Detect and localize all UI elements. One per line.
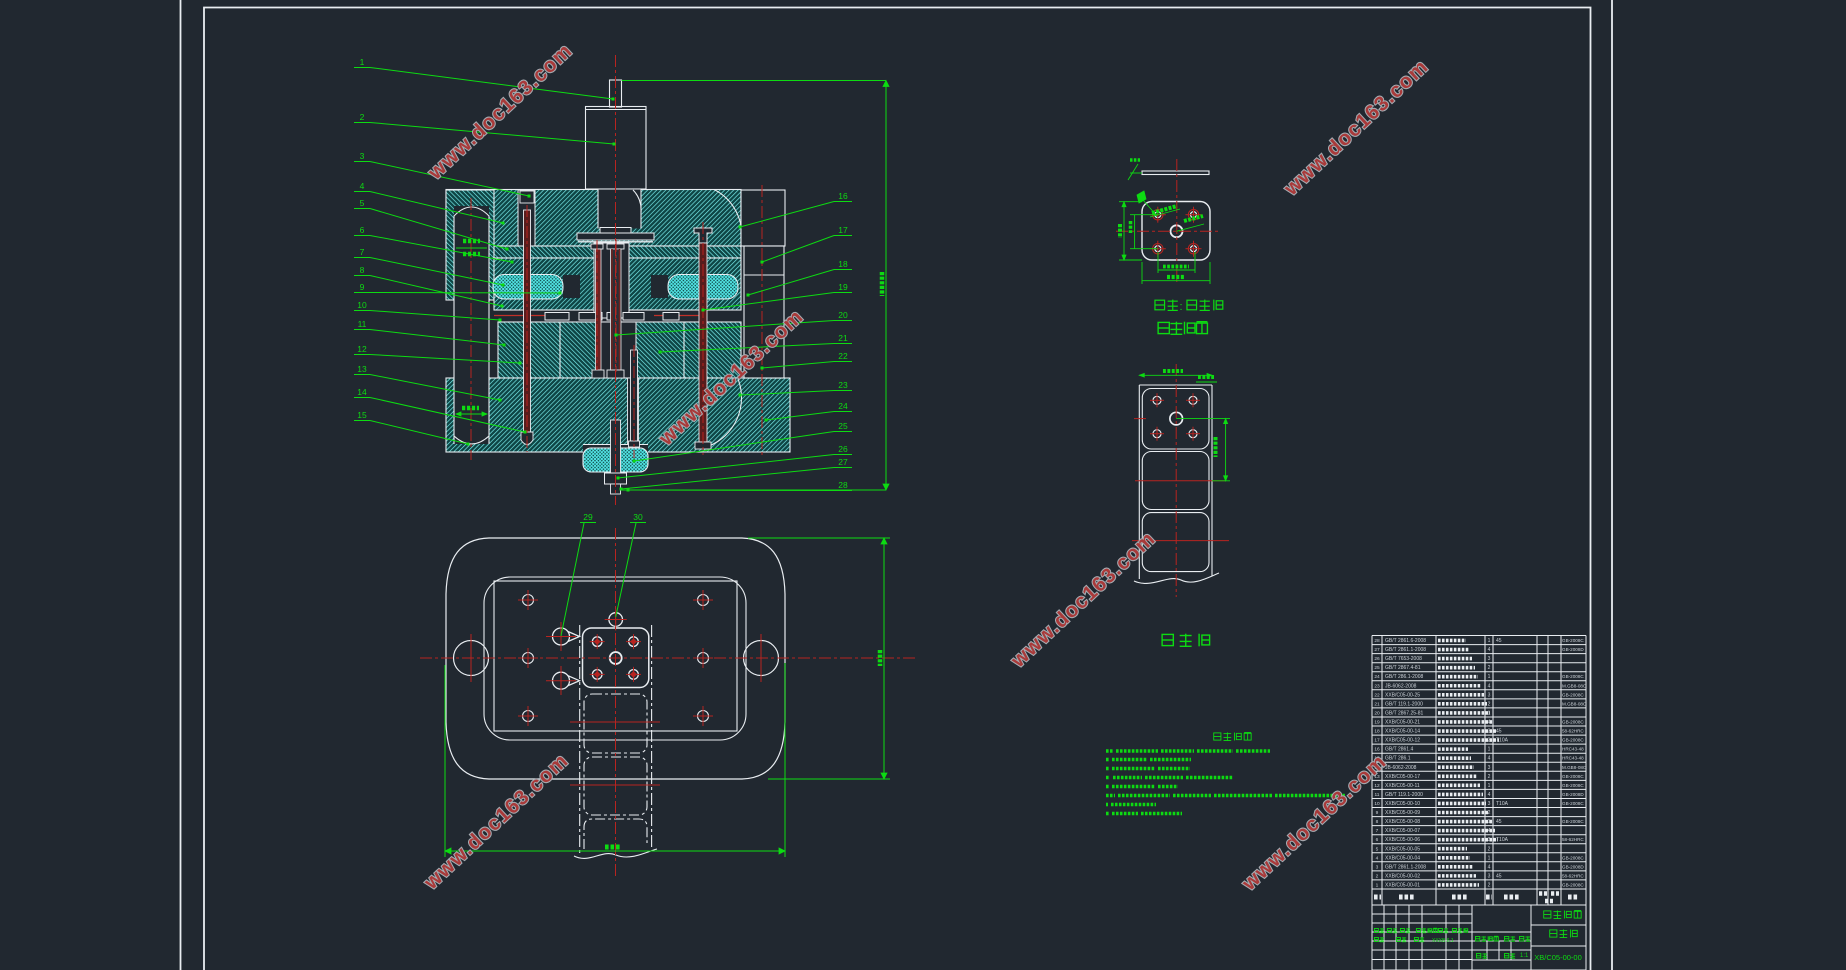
svg-text:58-62HRC: 58-62HRC [1562, 837, 1584, 842]
svg-text:HRC43-48: HRC43-48 [1562, 747, 1584, 752]
svg-text:M.GB8-08C: M.GB8-08C [1562, 765, 1587, 770]
svg-text:21: 21 [1374, 701, 1380, 707]
svg-text:8: 8 [360, 265, 365, 275]
svg-text:12: 12 [357, 344, 367, 354]
svg-text:3: 3 [1488, 692, 1491, 698]
svg-text:XXB/C05-00-25: XXB/C05-00-25 [1385, 692, 1420, 698]
svg-text:18: 18 [1374, 729, 1380, 735]
svg-text:3: 3 [1488, 656, 1491, 662]
svg-text:15: 15 [357, 410, 367, 420]
svg-text:2: 2 [1488, 846, 1491, 852]
svg-text:GB/T 2867.25-81: GB/T 2867.25-81 [1385, 710, 1423, 716]
svg-text:25: 25 [838, 421, 848, 431]
svg-text:17: 17 [1374, 738, 1380, 744]
svg-text:GB/T 2867.4-81: GB/T 2867.4-81 [1385, 665, 1421, 671]
svg-text:GB/T 119.1-2000: GB/T 119.1-2000 [1385, 792, 1423, 798]
svg-text:HRC43-48: HRC43-48 [1562, 756, 1584, 761]
svg-text:2: 2 [1488, 774, 1491, 780]
svg-text:2: 2 [1488, 883, 1491, 889]
svg-text:21: 21 [838, 333, 848, 343]
svg-text:2: 2 [1376, 873, 1379, 879]
svg-text:JB-6062-2008: JB-6062-2008 [1385, 683, 1417, 689]
svg-text:XXB/C05-00-06: XXB/C05-00-06 [1385, 837, 1420, 843]
svg-text:XXB/C05-00-12: XXB/C05-00-12 [1385, 738, 1420, 744]
svg-text:4: 4 [1488, 792, 1491, 798]
svg-text:4: 4 [1488, 756, 1491, 762]
svg-text::: : [1179, 301, 1182, 313]
svg-text:GB/T 119.1-2000: GB/T 119.1-2000 [1385, 701, 1423, 707]
svg-text:XXB/C05-00-02: XXB/C05-00-02 [1385, 873, 1420, 879]
svg-text:58-62HRC: 58-62HRC [1562, 729, 1584, 734]
svg-text:23: 23 [838, 380, 848, 390]
svg-text:3: 3 [360, 151, 365, 161]
svg-text:25: 25 [1374, 665, 1380, 671]
svg-text:19: 19 [1374, 720, 1380, 726]
svg-text:GB/T 2861.6-2008: GB/T 2861.6-2008 [1385, 638, 1426, 644]
svg-text:5: 5 [360, 198, 365, 208]
svg-text:XXB/C05-00-21: XXB/C05-00-21 [1385, 720, 1420, 726]
svg-text:27: 27 [838, 457, 848, 467]
svg-text:28: 28 [838, 480, 848, 490]
svg-text:58-62HRC: 58-62HRC [1562, 873, 1584, 878]
svg-text:4: 4 [1488, 647, 1491, 653]
svg-text:24: 24 [1374, 674, 1380, 680]
svg-text:GB/T 2861.1-2008: GB/T 2861.1-2008 [1385, 864, 1426, 870]
svg-text:2: 2 [360, 112, 365, 122]
svg-text:1: 1 [1488, 674, 1491, 680]
svg-text:XXB/C05-00-11: XXB/C05-00-11 [1385, 783, 1420, 789]
svg-text:GB/T 286.1: GB/T 286.1 [1385, 756, 1411, 762]
svg-text:1: 1 [1488, 783, 1491, 789]
svg-text:XXB/C05-00-05: XXB/C05-00-05 [1385, 846, 1420, 852]
svg-text:GB-2008C: GB-2008C [1562, 738, 1584, 743]
svg-text:4: 4 [360, 181, 365, 191]
svg-text:45: 45 [1496, 638, 1502, 644]
svg-text:4: 4 [1376, 855, 1379, 861]
svg-text:1: 1 [1488, 855, 1491, 861]
svg-text:GB-2008C: GB-2008C [1562, 801, 1584, 806]
svg-text:5: 5 [1376, 846, 1379, 852]
svg-text:2: 2 [1488, 701, 1491, 707]
svg-text:22: 22 [1374, 692, 1380, 698]
svg-text:GB/T 2861.4: GB/T 2861.4 [1385, 747, 1413, 753]
svg-text:6: 6 [360, 225, 365, 235]
svg-text:M.GB8-08C: M.GB8-08C [1562, 683, 1587, 688]
svg-text:24: 24 [838, 401, 848, 411]
svg-text:30: 30 [633, 512, 643, 522]
svg-text:2: 2 [1488, 665, 1491, 671]
svg-text:XXB/C05-00-10: XXB/C05-00-10 [1385, 801, 1420, 807]
svg-text:10: 10 [357, 300, 367, 310]
svg-text:GB-2008C: GB-2008C [1562, 674, 1584, 679]
svg-text:3: 3 [1376, 864, 1379, 870]
svg-text:1: 1 [1488, 638, 1491, 644]
svg-text:GB-2008C: GB-2008C [1562, 855, 1584, 860]
svg-text:GB/T 7653-2008: GB/T 7653-2008 [1385, 656, 1422, 662]
svg-text:1: 1 [1376, 883, 1379, 889]
svg-text:XXB/C05-00-14: XXB/C05-00-14 [1385, 729, 1420, 735]
svg-text:GB-2008C: GB-2008C [1562, 819, 1584, 824]
svg-text:20: 20 [1374, 710, 1380, 716]
svg-text:27: 27 [1374, 647, 1380, 653]
svg-text:18: 18 [838, 259, 848, 269]
svg-text:19: 19 [838, 282, 848, 292]
svg-text:12: 12 [1374, 783, 1380, 789]
svg-text:T10A: T10A [1496, 801, 1509, 807]
svg-text:28: 28 [1374, 638, 1380, 644]
svg-text:GB-2008C: GB-2008C [1562, 638, 1584, 643]
svg-text:13: 13 [357, 364, 367, 374]
svg-text:XXXB.6.1: XXXB.6.1 [1432, 938, 1454, 944]
svg-text:XXB/C05-00-09: XXB/C05-00-09 [1385, 810, 1420, 816]
svg-text:GB-2008C: GB-2008C [1562, 883, 1584, 888]
svg-text:9: 9 [360, 282, 365, 292]
svg-text:GB-2008C: GB-2008C [1562, 774, 1584, 779]
svg-text:3: 3 [1488, 765, 1491, 771]
svg-text:1: 1 [1488, 747, 1491, 753]
svg-text:XXB/C05-00-04: XXB/C05-00-04 [1385, 855, 1420, 861]
svg-text:45: 45 [1496, 729, 1502, 735]
svg-text:M.GB8-08C: M.GB8-08C [1562, 701, 1587, 706]
svg-text:GB-2008C: GB-2008C [1562, 720, 1584, 725]
svg-text:14: 14 [357, 387, 367, 397]
svg-text:7: 7 [1376, 828, 1379, 834]
svg-text:1:1: 1:1 [1520, 953, 1529, 959]
svg-text:11: 11 [358, 319, 367, 329]
svg-text:GB-2008D: GB-2008D [1562, 647, 1584, 652]
svg-text:3: 3 [1488, 873, 1491, 879]
svg-text:GB-2008D: GB-2008D [1562, 864, 1584, 869]
svg-text:29: 29 [583, 512, 593, 522]
svg-text:6: 6 [1376, 837, 1379, 843]
svg-text:XXB/C05-00-07: XXB/C05-00-07 [1385, 828, 1420, 834]
svg-text:GB/T 286.1-2008: GB/T 286.1-2008 [1385, 674, 1423, 680]
svg-text:XB/C05-00-00: XB/C05-00-00 [1534, 953, 1582, 962]
svg-text:26: 26 [838, 444, 848, 454]
svg-text:11: 11 [1375, 792, 1380, 798]
svg-text:GB-2008C: GB-2008C [1562, 692, 1584, 697]
svg-text:20: 20 [838, 310, 848, 320]
svg-text:22: 22 [838, 351, 848, 361]
svg-text:10: 10 [1374, 801, 1380, 807]
svg-text:GB-2008C: GB-2008C [1562, 783, 1584, 788]
svg-text:XXB/C05-00-08: XXB/C05-00-08 [1385, 819, 1420, 825]
svg-text:7: 7 [360, 247, 365, 257]
svg-text:1: 1 [360, 57, 365, 67]
svg-text:GB/T 2861.1-2008: GB/T 2861.1-2008 [1385, 647, 1426, 653]
svg-text:8: 8 [1376, 819, 1379, 825]
svg-text:9: 9 [1376, 810, 1379, 816]
svg-text:4: 4 [1488, 683, 1491, 689]
svg-text:45: 45 [1496, 819, 1502, 825]
svg-text:XXB/C05-00-01: XXB/C05-00-01 [1385, 883, 1420, 889]
svg-text:45: 45 [1496, 873, 1502, 879]
svg-text:16: 16 [838, 191, 848, 201]
svg-text:XXB/C05-00-17: XXB/C05-00-17 [1385, 774, 1420, 780]
svg-text:23: 23 [1374, 683, 1380, 689]
svg-text:4: 4 [1488, 864, 1491, 870]
svg-text:3: 3 [1488, 801, 1491, 807]
svg-text:GB-2008D: GB-2008D [1562, 792, 1584, 797]
svg-text:26: 26 [1374, 656, 1380, 662]
svg-text:17: 17 [838, 225, 848, 235]
